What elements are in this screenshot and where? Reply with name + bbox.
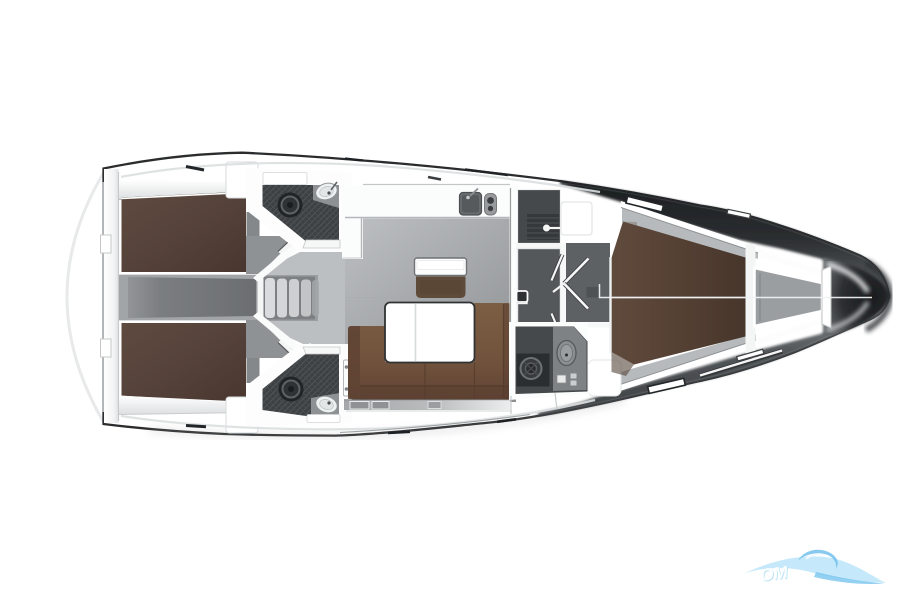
- svg-text:OM: OM: [759, 563, 789, 585]
